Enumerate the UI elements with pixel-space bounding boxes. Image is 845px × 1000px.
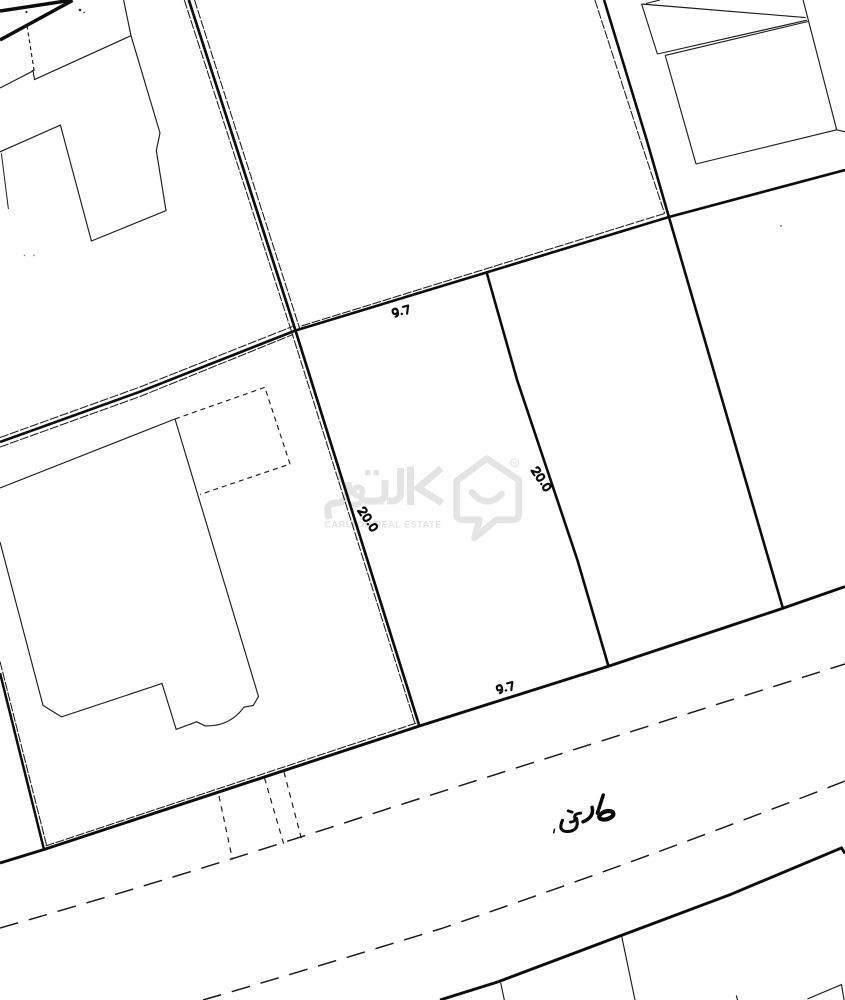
svg-text:R: R <box>512 461 517 467</box>
svg-text:CARLTON REAL ESTATE: CARLTON REAL ESTATE <box>325 520 442 530</box>
